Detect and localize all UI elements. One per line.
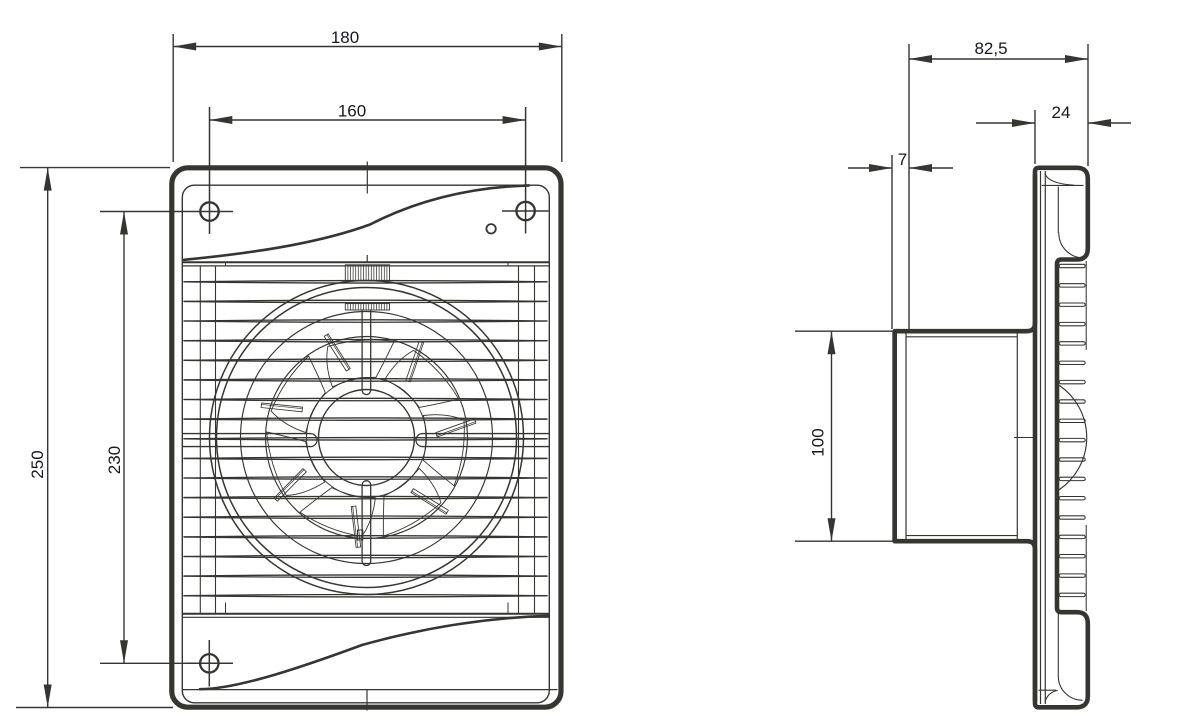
svg-text:100: 100 [809,428,828,456]
svg-text:250: 250 [28,450,47,478]
svg-text:160: 160 [338,102,366,121]
svg-text:82,5: 82,5 [974,39,1007,58]
svg-text:24: 24 [1052,103,1071,122]
svg-text:7: 7 [898,150,907,169]
svg-text:180: 180 [331,28,359,47]
svg-text:230: 230 [105,446,124,474]
